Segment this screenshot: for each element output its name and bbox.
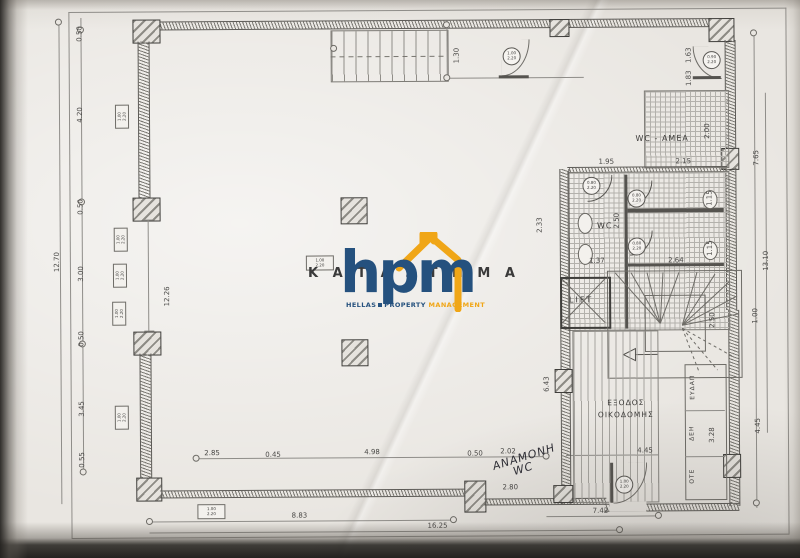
dim-util-h: 3.28 [708, 427, 716, 443]
column-entrance-2 [553, 485, 573, 503]
wall-top [158, 18, 711, 30]
door-tag-c6: 1.00 2.20 [615, 476, 633, 494]
floor-plan-drawing: 0.50 4.20 0.50 3.00 0.50 3.45 0.55 12.70… [0, 0, 800, 558]
column-top-right [708, 18, 734, 42]
dim-left-inner: 12.26 [163, 286, 171, 306]
dim-tick [450, 516, 457, 523]
window-tag-height: 2.20 [119, 309, 124, 318]
dim-left-c: 0.50 [77, 199, 85, 215]
room-label-exit-1: ΕΞΟΔΟΣ [607, 398, 644, 407]
room-label-wc: WC [597, 221, 613, 230]
dim-right-c: 4.45 [754, 418, 762, 434]
toilet-fixture-1 [578, 213, 593, 234]
dim-bot-c: 4.98 [364, 448, 380, 456]
dim-wc-amea-door: 1.83 [685, 70, 693, 86]
dim-left-b: 4.20 [76, 107, 84, 123]
column-top-left [132, 19, 160, 43]
dim-wc-w2: 2.64 [668, 256, 684, 264]
window-tag: 1.002.20 [113, 264, 127, 288]
column-interior-1 [341, 197, 368, 224]
dim-wc-out: 2.33 [536, 217, 544, 233]
column-entrance-1 [555, 369, 573, 393]
dim-line-right-outer [753, 30, 757, 508]
window-tag-height: 2.20 [121, 235, 126, 244]
dim-wc-h: 2.50 [613, 213, 621, 229]
plot-boundary-top [68, 8, 786, 13]
window-tag-height: 2.20 [122, 413, 127, 422]
dim-line-bottom-total3 [546, 515, 658, 517]
door-tag-height: 2.20 [632, 247, 641, 252]
door-tag-height: 2.20 [632, 199, 641, 204]
window-tag: 1.002.20 [197, 504, 225, 519]
door-tag-c2: 0.90 2.20 [703, 51, 721, 69]
dim-left-f: 3.45 [78, 401, 86, 417]
column-bottom-left [136, 477, 162, 501]
dim-bot-total-c: 7.42 [593, 507, 609, 515]
plot-boundary-left [68, 12, 72, 538]
room-label-lift: LIFT [569, 295, 593, 304]
door-tag-c1: 1.00 2.20 [503, 47, 521, 65]
column-interior-2 [341, 339, 368, 366]
dim-wc-t2: 1.15 [706, 240, 714, 256]
dim-wc-amea-h: 2.00 [703, 123, 711, 139]
dim-tick [443, 21, 450, 28]
door-leaf-top-1 [499, 75, 529, 78]
dim-left-e: 0.50 [77, 331, 85, 347]
window-tag: 1.002.20 [306, 255, 334, 270]
column-top-mid [549, 19, 569, 37]
dim-bot-a: 2.85 [204, 449, 220, 457]
dim-left-a: 0.50 [75, 26, 83, 42]
dim-line-bottom-total1 [149, 520, 454, 523]
dim-tick [616, 526, 623, 533]
dim-left-d: 3.00 [77, 266, 85, 282]
door-tag-height: 2.20 [587, 186, 596, 191]
window-tag-height: 2.20 [315, 263, 324, 268]
door-tag-height: 2.20 [707, 60, 716, 65]
dim-left-g: 0.55 [78, 452, 86, 468]
dim-line-bottom-total2 [150, 530, 622, 534]
room-label-ote: ΟΤΕ [689, 469, 696, 484]
dim-bot-total-b: 16.25 [427, 522, 447, 530]
window-tag-height: 2.20 [207, 512, 216, 517]
dim-wc-amea-w: 2.15 [675, 157, 691, 165]
dim-bot-total-a: 8.83 [292, 512, 308, 520]
dim-tick [750, 29, 757, 36]
column-left-1 [132, 197, 160, 221]
door-leaf-top-right [693, 76, 721, 79]
dim-bot-d: 0.50 [467, 449, 483, 457]
dim-tick [443, 74, 450, 81]
dim-wc-t1: 1.15 [705, 190, 713, 206]
dim-bot-b: 0.45 [265, 451, 281, 459]
dim-right-total-a: 7.65 [752, 150, 760, 166]
dim-top-stair: 1.30 [453, 48, 461, 64]
dim-stair-h: 2.50 [708, 312, 716, 328]
room-label-wc-amea: WC - AMEA [635, 134, 688, 143]
column-bottom-mid [464, 480, 486, 512]
dim-tick [655, 512, 662, 519]
window-tag: 1.002.20 [115, 406, 129, 430]
door-tag-height: 2.20 [507, 56, 516, 61]
door-tag-height: 2.20 [620, 485, 629, 490]
scanned-floor-plan: 0.50 4.20 0.50 3.00 0.50 3.45 0.55 12.70… [0, 0, 800, 558]
window-tag-height: 2.20 [122, 112, 127, 121]
window-tag: 1.002.20 [115, 105, 129, 129]
dim-wc-w1: 1.37 [589, 257, 605, 265]
door-tag-c4: 0.80 2.20 [627, 189, 645, 207]
dim-bot-f: 2.80 [502, 483, 518, 491]
plot-boundary-bottom [72, 534, 790, 539]
wall-bottom-a [160, 489, 464, 499]
wall-left-lower [139, 354, 152, 478]
door-tag-c5: 0.80 2.20 [628, 237, 646, 255]
dim-tick [80, 468, 87, 475]
room-label-deh: ΔΕΗ [688, 425, 695, 440]
window-tag-height: 2.20 [120, 271, 125, 280]
window-tag: 1.002.20 [112, 302, 126, 326]
window-left-sill-top [144, 220, 154, 221]
dim-right-b: 1.00 [751, 308, 759, 324]
dim-hall-h: 6.43 [543, 376, 551, 392]
dim-tick [330, 45, 337, 52]
window-left [148, 220, 150, 332]
dim-tick [146, 518, 153, 525]
column-left-2 [133, 331, 161, 355]
dim-right-total-b: 13.10 [762, 251, 770, 271]
dim-left-total: 12.70 [53, 252, 61, 272]
entrance-left-wall [560, 329, 571, 504]
dim-tick [193, 455, 200, 462]
wall-left-upper [138, 42, 151, 198]
dim-wc-amea-left: 1.95 [598, 158, 614, 166]
room-label-exit-2: ΟΙΚΟΔΟΜΗΣ [598, 410, 654, 419]
dim-tick [753, 499, 760, 506]
dim-tick [55, 19, 62, 26]
room-label-eydap: ΕΥΔΑΠ [689, 375, 696, 400]
dim-right-a: 1.63 [685, 47, 693, 63]
door-tag-c3: 0.80 2.20 [582, 177, 600, 195]
dim-bot-g: 4.45 [637, 446, 653, 454]
plot-boundary-right [785, 8, 789, 534]
window-tag: 1.002.20 [114, 228, 128, 252]
